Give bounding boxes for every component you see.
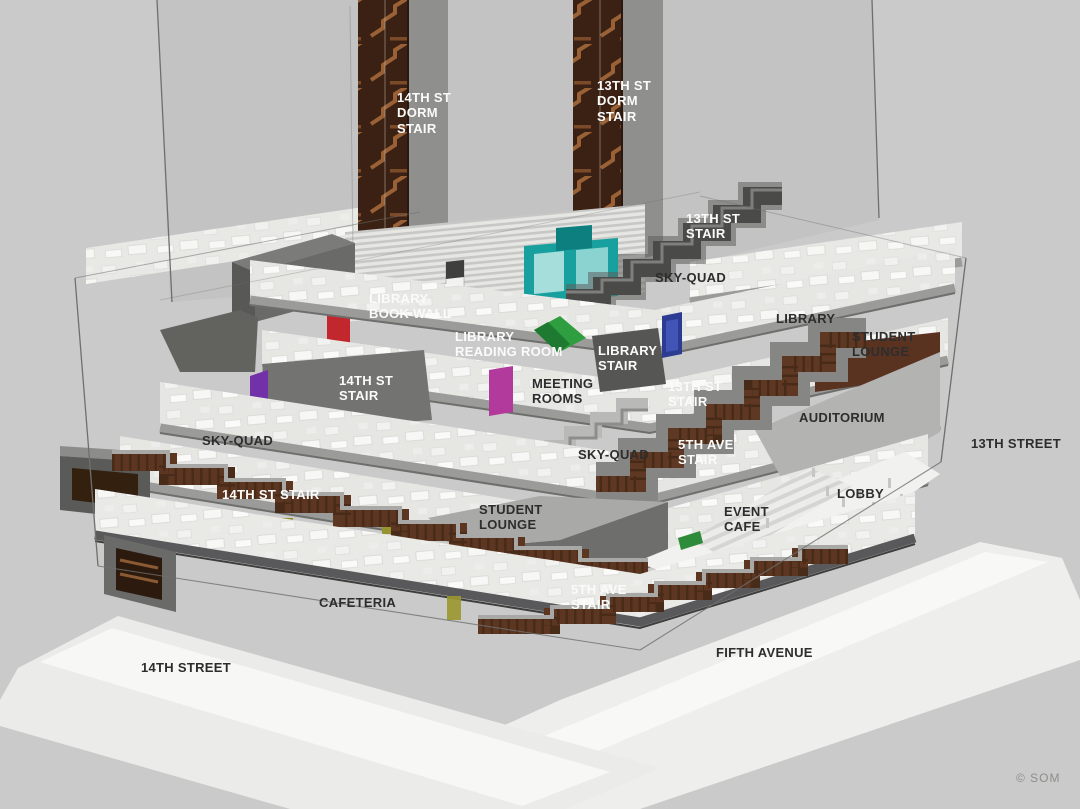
architectural-diagram: 14TH ST DORM STAIR 13TH ST DORM STAIR 13… — [0, 0, 1080, 809]
library-stair-box — [592, 328, 666, 392]
building-cutaway-illustration — [0, 0, 1080, 809]
credit-som: © SOM — [1016, 771, 1061, 785]
magenta-accent-panel — [489, 366, 513, 416]
olive-accent-3 — [447, 596, 461, 620]
